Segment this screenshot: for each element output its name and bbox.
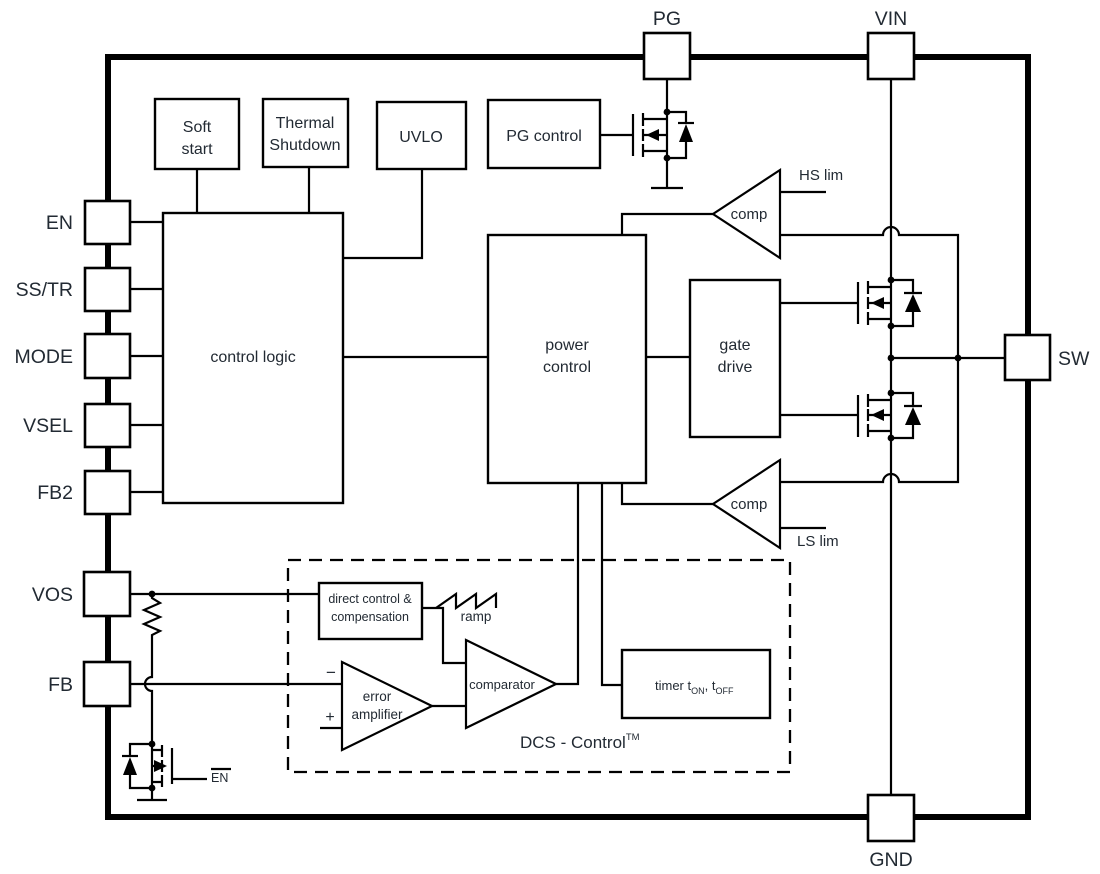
pin-label-sw: SW bbox=[1058, 348, 1090, 370]
pin-vsel bbox=[85, 404, 130, 447]
hs-lim-label: HS lim bbox=[799, 167, 843, 184]
hs-fet-arrow bbox=[871, 297, 884, 309]
diagram-canvas: PG VIN SW GND EN SS/TR MODE VSEL FB2 VOS… bbox=[0, 0, 1100, 874]
en-gate-label: EN bbox=[211, 771, 228, 785]
low-side-mosfet-icon bbox=[858, 393, 922, 438]
pg-mosfet-icon bbox=[633, 112, 694, 158]
pin-label-vos: VOS bbox=[32, 584, 73, 606]
dcs-control-label: DCS - ControlTM bbox=[520, 732, 640, 752]
power-control-label-1: power bbox=[545, 337, 589, 354]
soft-start-label-1: Soft bbox=[183, 119, 212, 136]
junction-dot bbox=[664, 155, 671, 162]
minus-sign: − bbox=[326, 663, 336, 682]
pin-gnd bbox=[868, 795, 914, 841]
pin-pg bbox=[644, 33, 690, 79]
timer-sub-on: ON bbox=[691, 686, 705, 696]
pin-sstr bbox=[85, 268, 130, 311]
thermal-shutdown-block bbox=[263, 99, 348, 167]
ls-lim-label: LS lim bbox=[797, 533, 839, 550]
junction-dot bbox=[888, 323, 895, 330]
pin-vin bbox=[868, 33, 914, 79]
gate-drive-label-1: gate bbox=[719, 337, 750, 354]
discharge-fet-diode-triangle bbox=[123, 757, 137, 775]
ls-comp-label: comp bbox=[731, 496, 768, 513]
pg-branch-wires bbox=[600, 79, 683, 188]
pin-fb2 bbox=[85, 471, 130, 514]
block-diagram: PG VIN SW GND EN SS/TR MODE VSEL FB2 VOS… bbox=[0, 0, 1100, 874]
comparator-label: comparator bbox=[469, 677, 535, 692]
pin-vos bbox=[84, 572, 130, 616]
pin-label-sstr: SS/TR bbox=[16, 279, 73, 301]
thermal-label-2: Shutdown bbox=[269, 137, 340, 154]
high-side-mosfet-icon bbox=[858, 280, 922, 326]
pin-sw bbox=[1005, 335, 1050, 380]
pin-label-vsel: VSEL bbox=[23, 415, 73, 437]
junction-dot bbox=[664, 109, 671, 116]
pg-fet-diode-triangle bbox=[679, 124, 693, 142]
hs-fet-diode-triangle bbox=[905, 294, 921, 312]
ls-fet-arrow bbox=[871, 409, 884, 421]
junction-dot bbox=[955, 355, 962, 362]
pg-control-label: PG control bbox=[506, 128, 582, 145]
junction-dot bbox=[888, 355, 895, 362]
dcs-trademark: TM bbox=[626, 732, 640, 743]
uvlo-label: UVLO bbox=[399, 129, 443, 146]
junction-dot bbox=[888, 435, 895, 442]
error-amp-label-2: amplifier bbox=[351, 707, 403, 722]
power-control-bottom-wires bbox=[556, 483, 622, 685]
junction-dot bbox=[888, 277, 895, 284]
pin-label-vin: VIN bbox=[875, 8, 908, 30]
error-amplifier-triangle bbox=[342, 662, 432, 750]
hs-comp-label: comp bbox=[731, 206, 768, 223]
pin-fb bbox=[84, 662, 130, 706]
dcs-control-text: DCS - Control bbox=[520, 733, 626, 752]
pin-label-gnd: GND bbox=[869, 849, 912, 871]
soft-start-label-2: start bbox=[181, 141, 213, 158]
ramp-label: ramp bbox=[461, 609, 492, 624]
ramp-sawtooth-icon bbox=[436, 594, 496, 608]
direct-control-out bbox=[422, 608, 466, 663]
gate-drive-label-2: drive bbox=[718, 359, 753, 376]
pin-en bbox=[85, 201, 130, 244]
power-control-label-2: control bbox=[543, 359, 591, 376]
direct-control-label-2: compensation bbox=[331, 610, 409, 624]
ls-fet-diode-triangle bbox=[905, 407, 921, 425]
pin-label-en: EN bbox=[46, 212, 73, 234]
limit-stub-wires bbox=[780, 192, 826, 528]
timer-block bbox=[622, 650, 770, 718]
junction-dot bbox=[149, 591, 156, 598]
junction-dot bbox=[149, 785, 156, 792]
vos-resistor-drop bbox=[144, 594, 160, 744]
control-logic-label: control logic bbox=[210, 349, 295, 366]
pg-fet-arrow bbox=[646, 129, 659, 141]
timer-label-mid: , t bbox=[705, 678, 716, 693]
timer-label-main: timer t bbox=[655, 678, 692, 693]
thermal-label-1: Thermal bbox=[276, 115, 335, 132]
gate-lead-wires bbox=[780, 303, 858, 415]
pin-label-pg: PG bbox=[653, 8, 681, 30]
current-sense-loop bbox=[780, 227, 958, 482]
pin-label-fb2: FB2 bbox=[37, 482, 73, 504]
junction-dot bbox=[888, 390, 895, 397]
pin-label-mode: MODE bbox=[15, 346, 74, 368]
timer-sub-off: OFF bbox=[715, 686, 733, 696]
direct-control-label-1: direct control & bbox=[328, 592, 412, 606]
discharge-fet-arrow bbox=[154, 760, 167, 772]
junction-dot bbox=[149, 741, 156, 748]
error-amp-label-1: error bbox=[363, 689, 392, 704]
plus-sign: + bbox=[325, 709, 334, 726]
pin-mode bbox=[85, 334, 130, 378]
pin-label-fb: FB bbox=[48, 674, 73, 696]
left-pin-wires bbox=[130, 222, 163, 492]
